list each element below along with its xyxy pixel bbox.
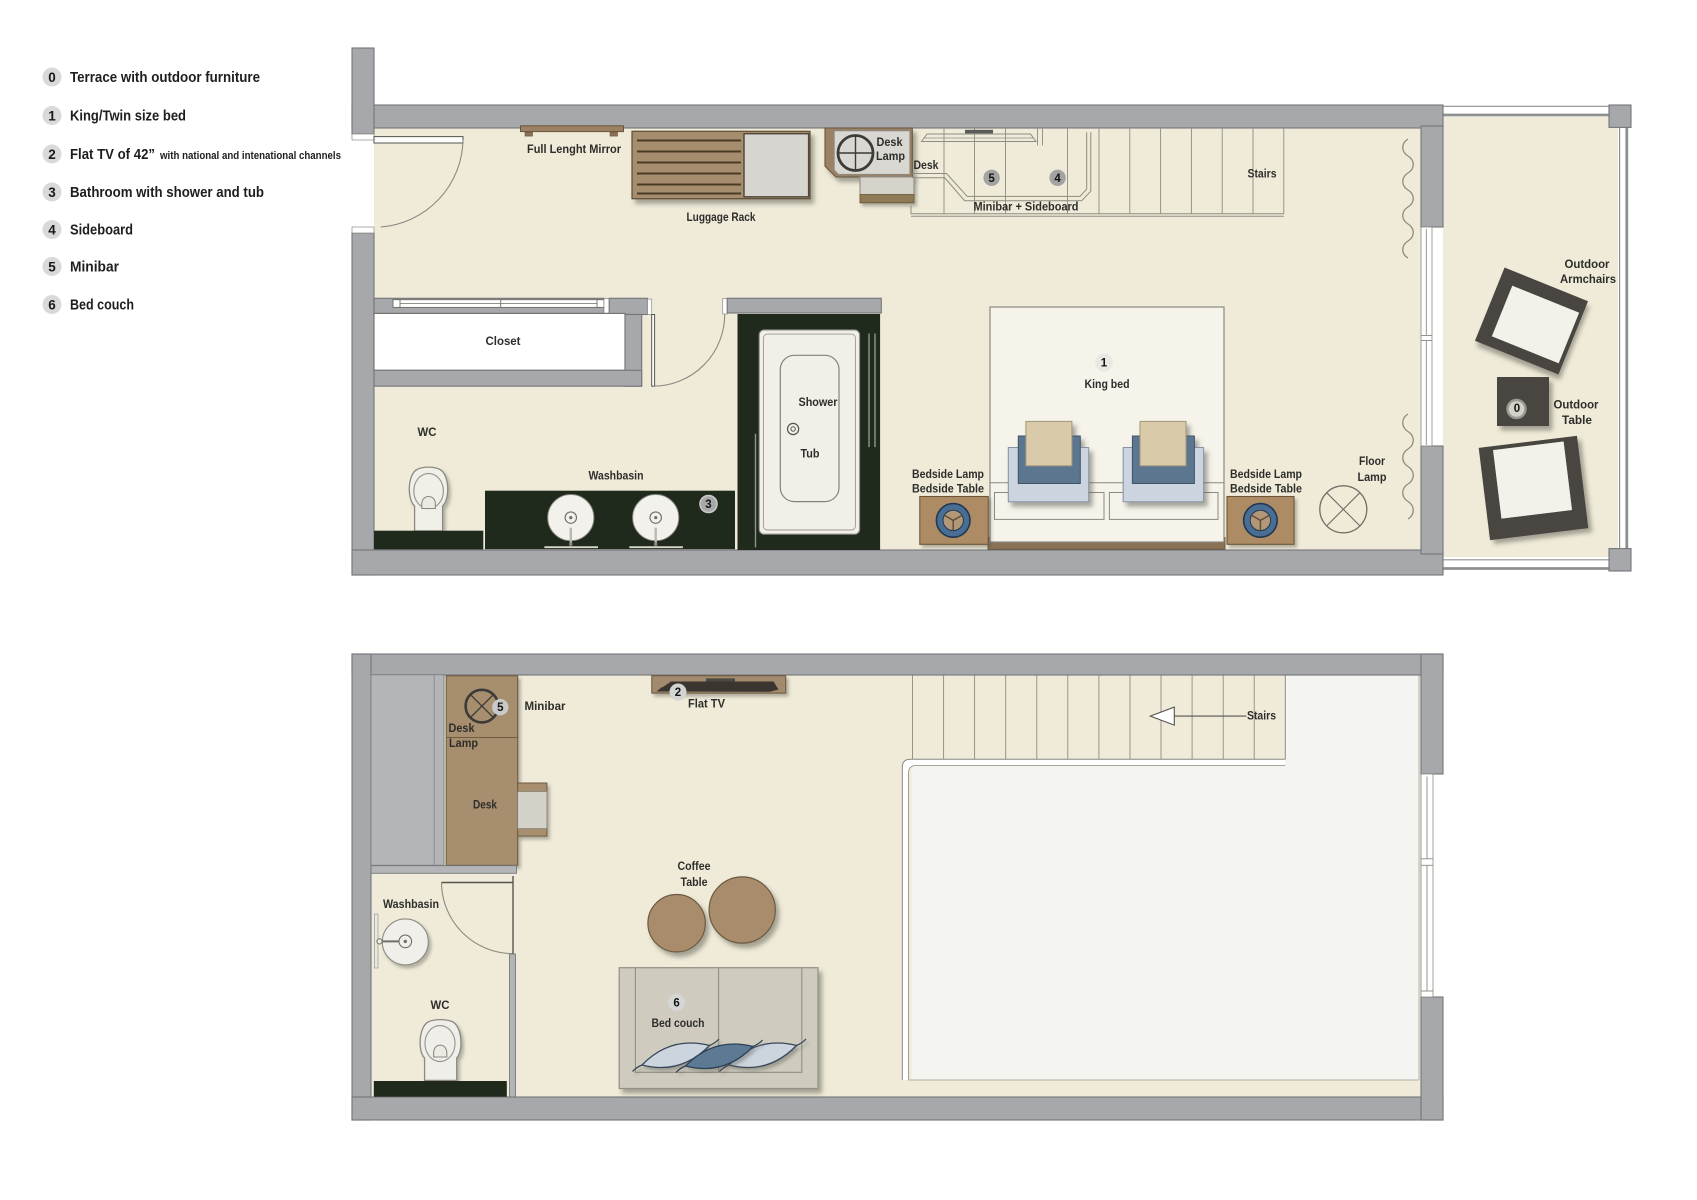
svg-text:Bedside Table: Bedside Table [912,482,984,496]
svg-text:Desk: Desk [877,137,904,149]
svg-text:Minibar: Minibar [70,259,119,276]
svg-text:Desk: Desk [473,798,497,812]
svg-text:Sideboard: Sideboard [70,222,133,239]
svg-text:Bedside Lamp: Bedside Lamp [912,467,984,481]
svg-text:Luggage Rack: Luggage Rack [687,210,756,224]
svg-text:5: 5 [497,702,504,714]
svg-text:6: 6 [48,298,56,313]
svg-text:King/Twin size bed: King/Twin size bed [70,108,186,125]
svg-text:1: 1 [48,109,56,124]
svg-text:0: 0 [1514,403,1520,415]
svg-text:4: 4 [48,223,56,238]
svg-text:Outdoor: Outdoor [1565,257,1610,271]
svg-text:5: 5 [988,173,995,185]
svg-text:Table: Table [1562,413,1592,427]
svg-text:Lamp: Lamp [876,151,905,163]
svg-text:Floor: Floor [1359,454,1385,468]
svg-text:Minibar + Sideboard: Minibar + Sideboard [974,200,1079,214]
svg-text:Flat TV of 42”: Flat TV of 42” [70,146,155,163]
svg-text:Closet: Closet [486,334,521,348]
svg-text:2: 2 [48,147,56,162]
svg-text:Lamp: Lamp [449,738,478,750]
svg-text:4: 4 [1054,173,1061,185]
svg-text:Lamp: Lamp [1358,470,1387,484]
svg-text:Washbasin: Washbasin [589,469,644,483]
svg-text:Bed couch: Bed couch [70,297,134,314]
svg-text:2: 2 [675,687,681,699]
svg-text:1: 1 [1101,358,1108,370]
svg-text:Full Lenght Mirror: Full Lenght Mirror [527,142,621,156]
svg-text:Desk: Desk [449,723,476,735]
svg-text:3: 3 [48,185,56,200]
svg-text:Shower: Shower [799,395,838,409]
svg-text:King bed: King bed [1085,377,1130,391]
svg-text:Armchairs: Armchairs [1560,272,1616,286]
svg-text:Bed couch: Bed couch [652,1016,705,1030]
svg-text:Stairs: Stairs [1248,167,1277,181]
svg-text:Tub: Tub [801,447,820,461]
svg-text:Stairs: Stairs [1247,709,1276,723]
svg-text:WC: WC [431,998,450,1012]
svg-text:WC: WC [418,425,437,439]
svg-text:Bedside Table: Bedside Table [1230,482,1302,496]
svg-text:Flat TV: Flat TV [688,697,725,711]
svg-text:6: 6 [673,997,679,1009]
svg-text:Bedside Lamp: Bedside Lamp [1230,467,1302,481]
svg-text:3: 3 [705,499,711,511]
svg-text:Table: Table [681,875,708,889]
svg-text:Bathroom with shower and tub: Bathroom with shower and tub [70,184,264,201]
svg-text:Washbasin: Washbasin [383,897,439,911]
svg-text:Minibar: Minibar [525,699,566,713]
svg-text:Coffee: Coffee [678,859,711,873]
svg-text:with national and intenational: with national and intenational channels [159,150,341,162]
svg-text:Desk: Desk [914,158,939,172]
svg-text:Terrace with outdoor furniture: Terrace with outdoor furniture [70,69,260,86]
svg-text:Outdoor: Outdoor [1554,398,1599,412]
svg-text:0: 0 [48,70,56,85]
svg-text:5: 5 [48,260,56,275]
